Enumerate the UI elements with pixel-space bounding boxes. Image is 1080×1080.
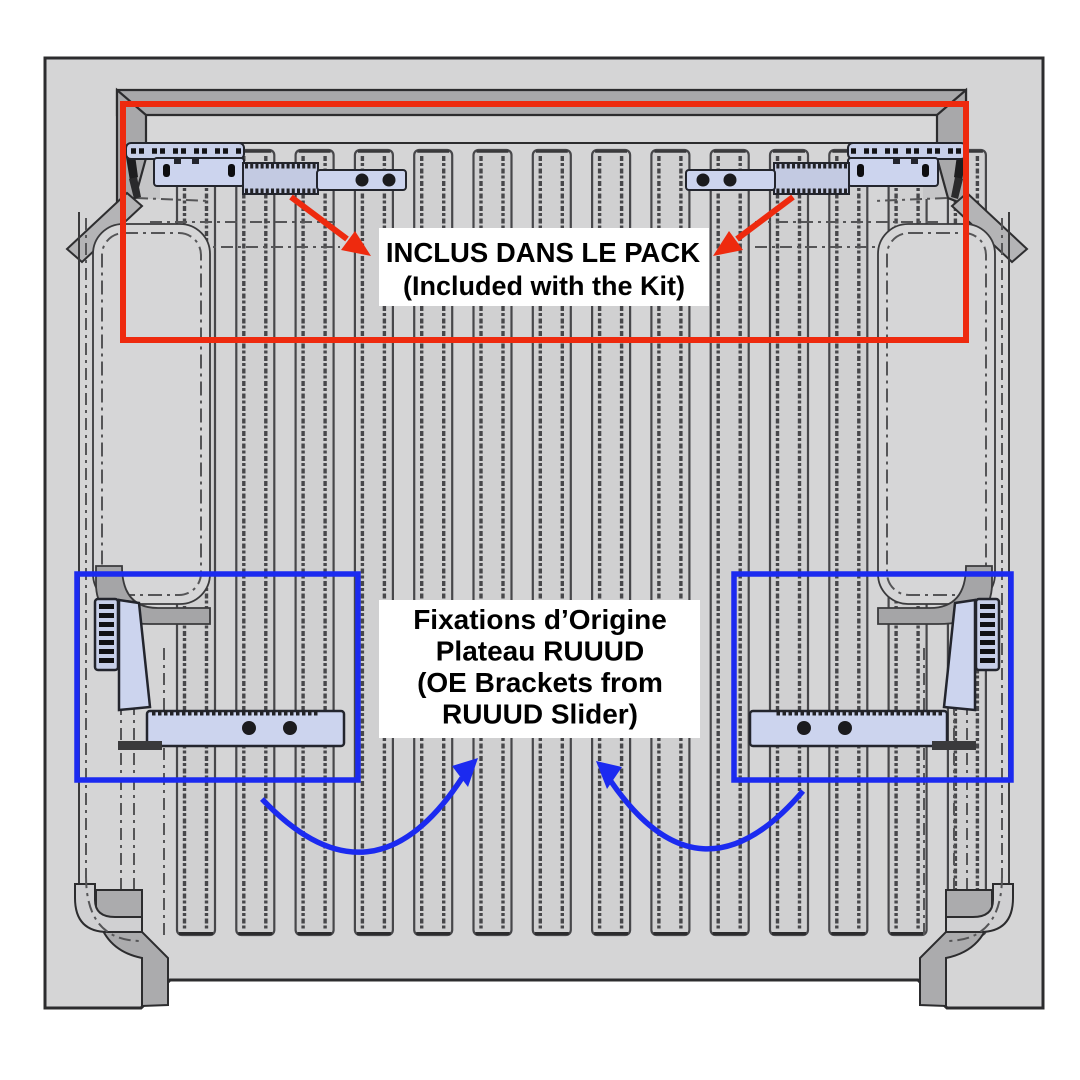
svg-text:(OE Brackets from: (OE Brackets from xyxy=(417,667,663,698)
svg-text:Plateau RUUUD: Plateau RUUUD xyxy=(436,636,644,667)
svg-text:Fixations d’Origine: Fixations d’Origine xyxy=(413,604,667,635)
svg-text:INCLUS DANS LE PACK: INCLUS DANS LE PACK xyxy=(386,237,700,268)
svg-text:(Included with the Kit): (Included with the Kit) xyxy=(403,271,685,301)
svg-text:RUUUD Slider): RUUUD Slider) xyxy=(442,699,638,730)
